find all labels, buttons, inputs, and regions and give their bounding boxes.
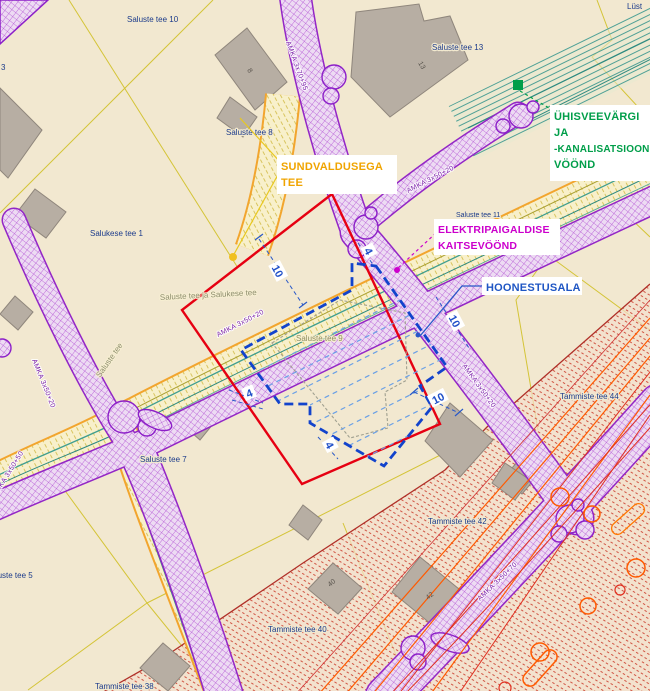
parcel-label: Tammiste tee 40	[268, 625, 327, 634]
parcel-label: Saluste tee 9	[296, 334, 343, 343]
parcel-label: Salukese tee 1	[90, 229, 143, 238]
parcel-label: Lüst	[627, 2, 643, 11]
callout-label: HOONESTUSALA	[486, 282, 581, 294]
detail-plan-map: 10 10 10 4 4 4 AMKA 3x70+95 AMKA 3x50+20…	[0, 0, 650, 691]
parcel-label: Tammiste tee 44	[560, 392, 619, 401]
parcel-label: 3	[1, 63, 6, 72]
parcel-label: Saluste tee 7	[140, 455, 187, 464]
parcel-label: Tammiste tee 38	[95, 682, 154, 691]
callout-label: SUNDVALDUSEGA	[281, 161, 383, 173]
parcel-label: Saluste tee 5	[0, 571, 33, 580]
callout-label: ELEKTRIPAIGALDISE	[438, 224, 550, 236]
callout-label: ÜHISVEEVÄRGI	[554, 110, 640, 123]
parcel-label: Saluste tee 11	[456, 212, 500, 219]
callout-label: VÖÖND	[554, 158, 595, 171]
callout-label: -KANALISATSIOONI	[554, 144, 650, 155]
parcel-label: Saluste tee 13	[432, 43, 484, 52]
parcel-label: Tammiste tee 42	[428, 517, 487, 526]
callout-label: KAITSEVÖÖND	[438, 239, 517, 252]
leader-dot	[229, 253, 237, 261]
leader-dot	[394, 267, 400, 273]
leader-marker	[513, 80, 523, 90]
leader-dot	[416, 333, 421, 338]
callout-label: TEE	[281, 177, 303, 189]
parcel-label: Saluste tee 10	[127, 15, 179, 24]
callout-label: JA	[554, 127, 568, 139]
map-canvas[interactable]: 10 10 10 4 4 4 AMKA 3x70+95 AMKA 3x50+20…	[0, 0, 650, 691]
